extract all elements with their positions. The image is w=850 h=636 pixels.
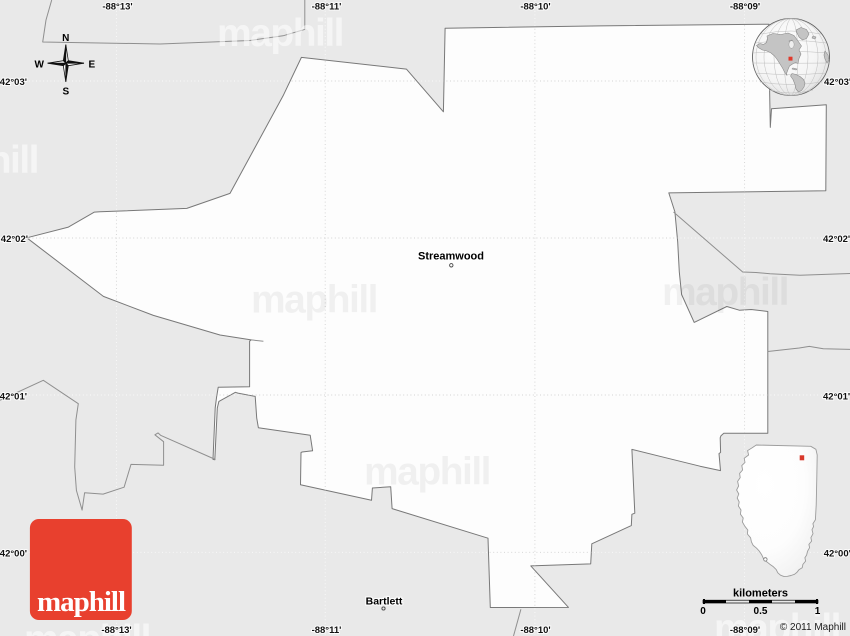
svg-text:-88°09': -88°09' [730,2,760,13]
svg-text:42°00': 42°00' [824,549,850,560]
svg-text:-88°09': -88°09' [730,625,760,636]
svg-text:42°00': 42°00' [0,549,27,560]
svg-text:Streamwood: Streamwood [418,251,484,263]
svg-text:maphill: maphill [0,139,38,182]
svg-text:-88°10': -88°10' [520,625,550,636]
svg-text:W: W [35,59,45,70]
svg-text:-88°13': -88°13' [101,625,131,636]
svg-text:0: 0 [700,606,706,617]
svg-text:0.5: 0.5 [754,606,768,617]
svg-text:-88°10': -88°10' [520,2,550,13]
svg-text:42°03': 42°03' [824,77,850,88]
svg-text:-88°11': -88°11' [312,2,342,13]
svg-text:-88°11': -88°11' [312,625,342,636]
svg-text:1: 1 [815,606,821,617]
svg-text:42°02': 42°02' [1,234,28,245]
svg-text:maphill: maphill [662,271,788,314]
svg-text:N: N [62,33,69,44]
svg-text:42°02': 42°02' [823,234,850,245]
svg-text:Bartlett: Bartlett [366,596,403,608]
svg-text:kilometers: kilometers [733,588,788,600]
svg-text:42°01': 42°01' [823,392,850,403]
svg-text:-88°13': -88°13' [102,2,132,13]
svg-text:42°01': 42°01' [0,392,27,403]
svg-text:S: S [62,86,69,97]
svg-text:maphill: maphill [37,586,126,618]
svg-text:maphill: maphill [217,12,343,55]
svg-text:E: E [89,59,96,70]
svg-text:maphill: maphill [251,279,377,322]
svg-text:42°03': 42°03' [0,77,27,88]
svg-text:© 2011 Maphill: © 2011 Maphill [780,622,846,633]
svg-text:maphill: maphill [364,451,490,494]
